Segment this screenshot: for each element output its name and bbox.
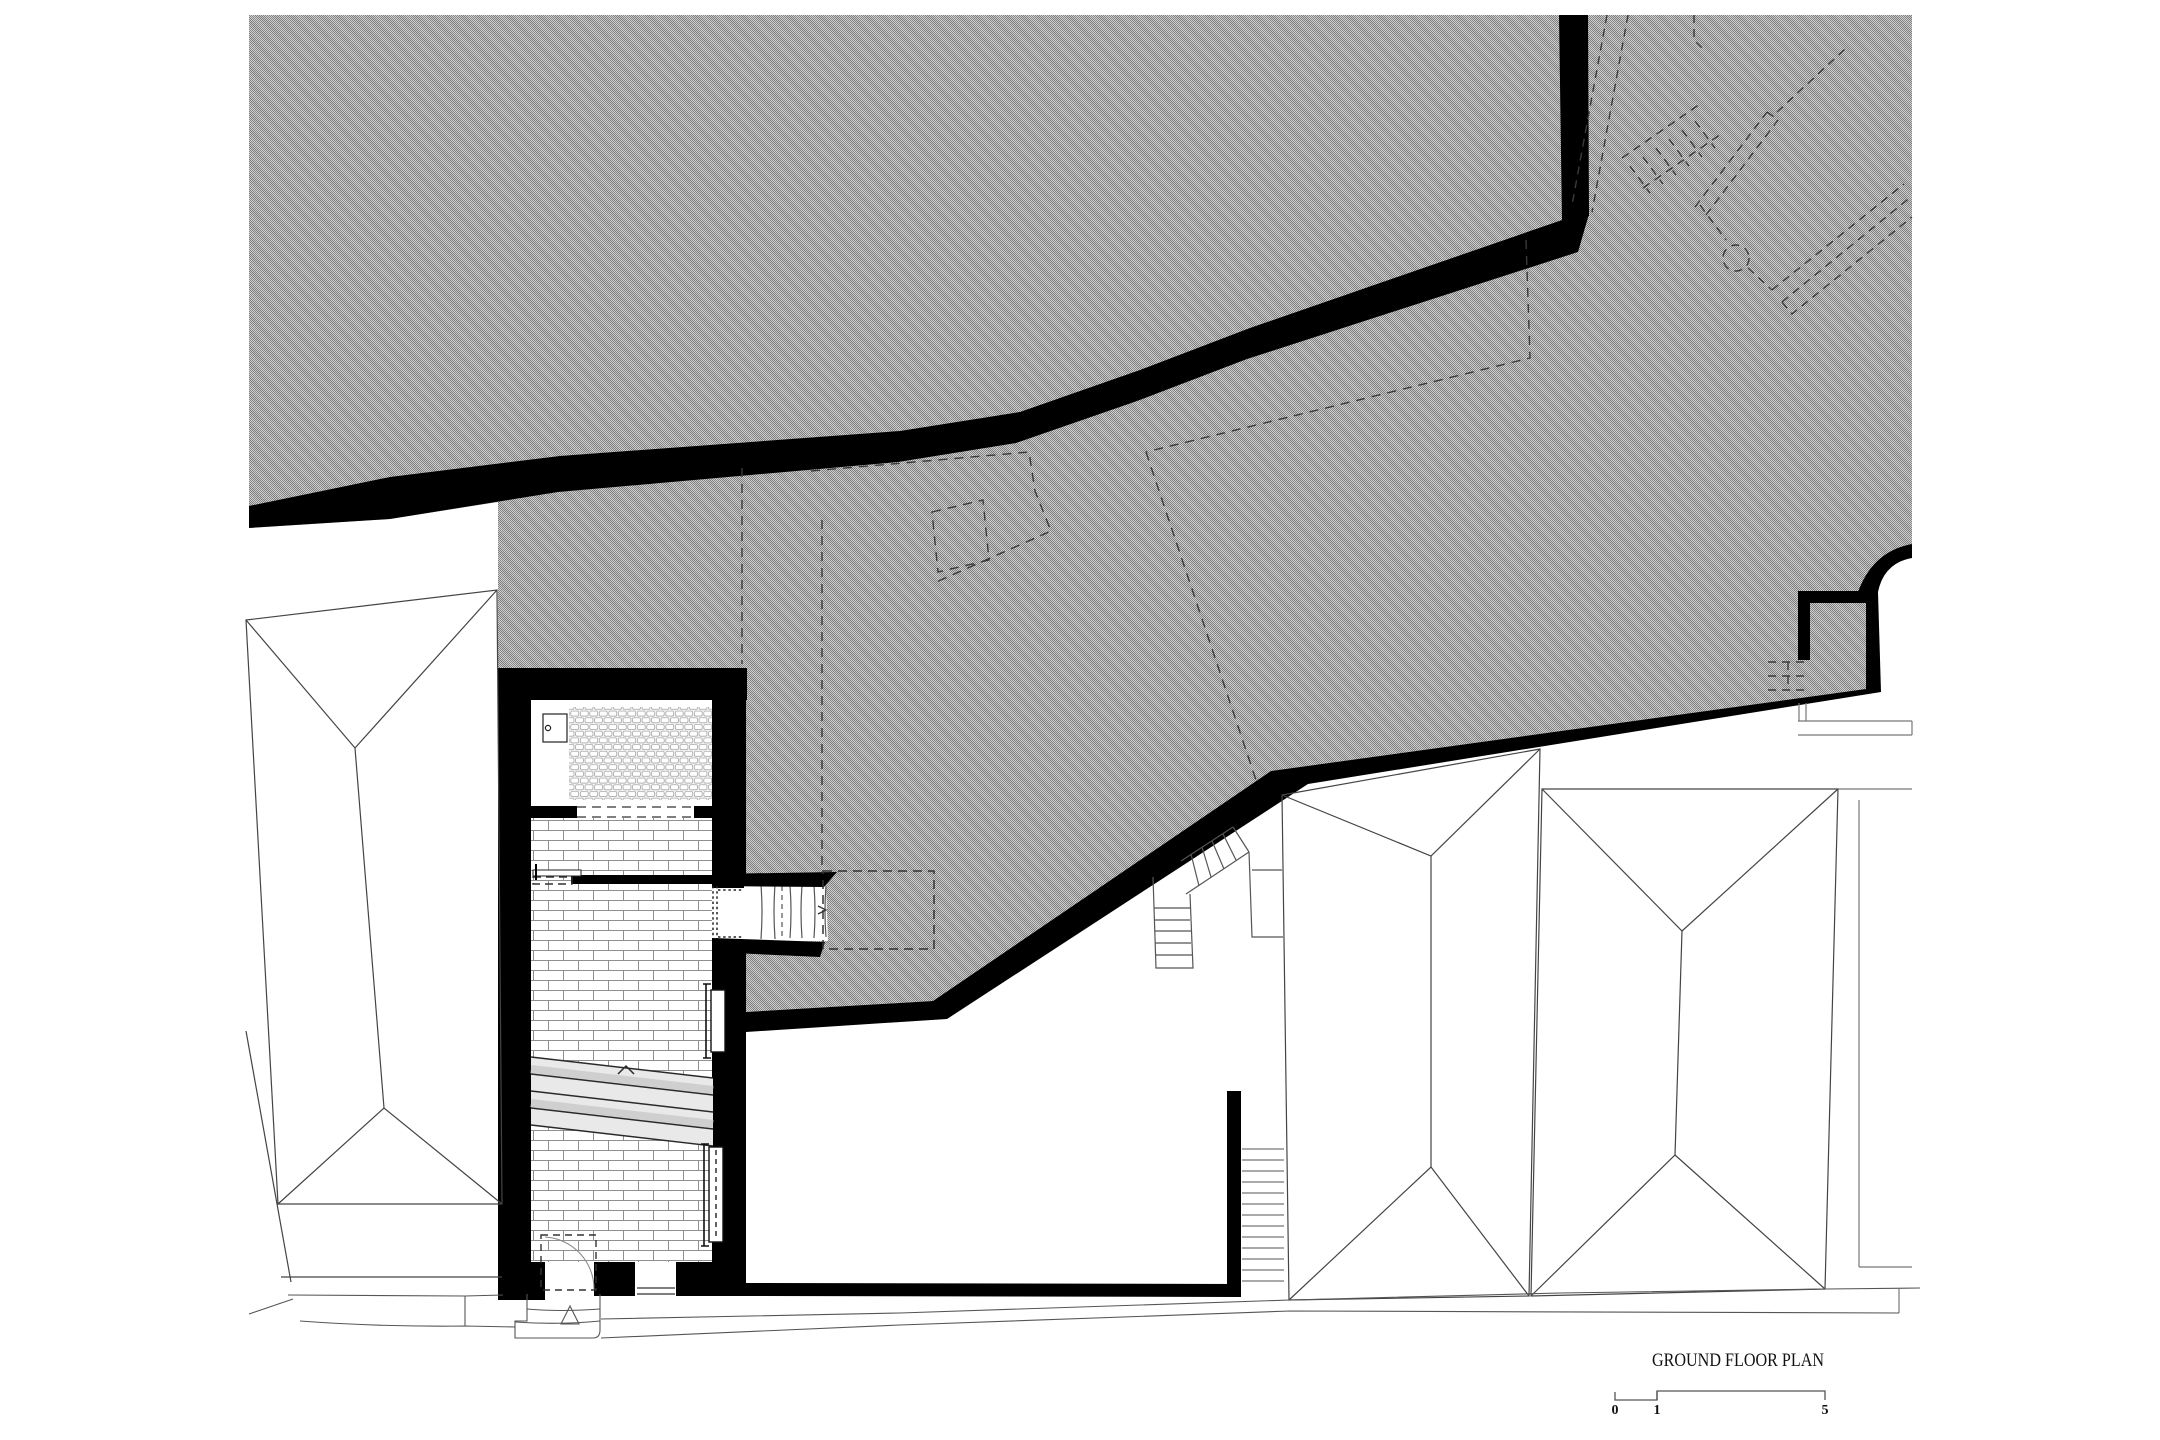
svg-text:5: 5: [1822, 1403, 1829, 1418]
svg-text:GROUND FLOOR PLAN: GROUND FLOOR PLAN: [1652, 1350, 1824, 1371]
svg-text:0: 0: [1612, 1403, 1619, 1418]
svg-text:1: 1: [1654, 1403, 1661, 1418]
